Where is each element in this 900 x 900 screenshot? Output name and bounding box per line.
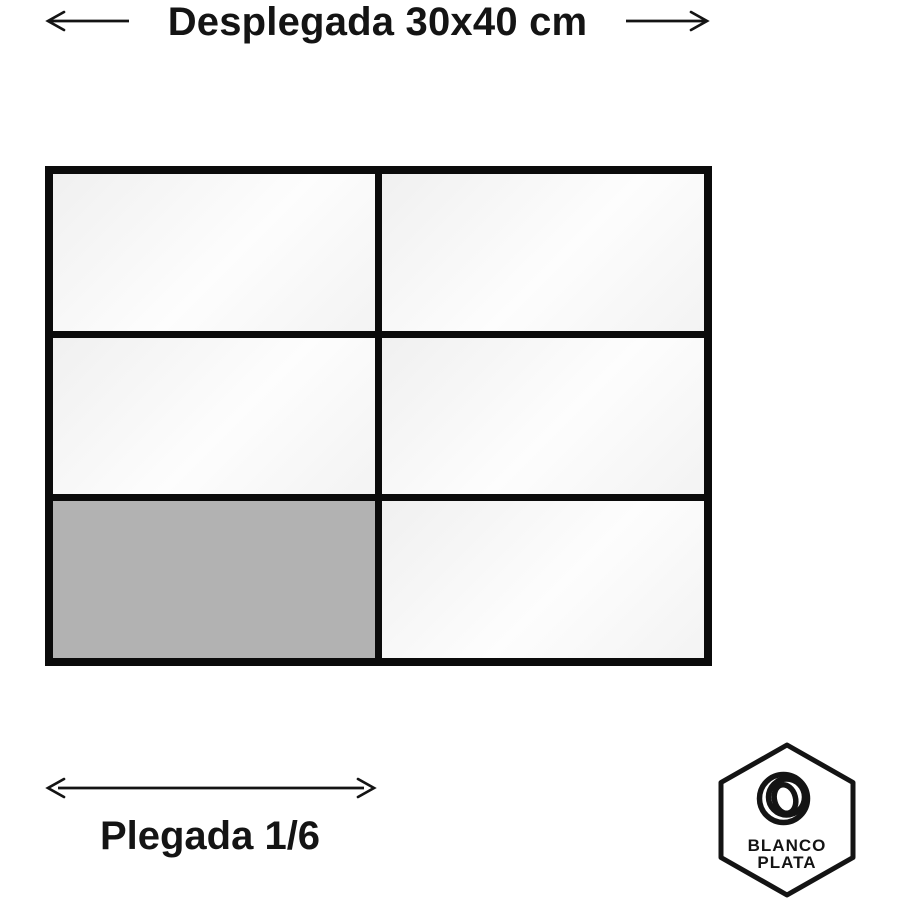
swirl-icon xyxy=(760,775,808,823)
panel-cell xyxy=(382,501,704,658)
fold-grid xyxy=(45,166,712,666)
unfolded-size-label: Desplegada 30x40 cm xyxy=(140,0,615,45)
arrow-right-icon xyxy=(623,8,711,34)
folded-size-label: Plegada 1/6 xyxy=(40,812,380,860)
double-arrow-icon xyxy=(44,775,378,801)
panel-cell xyxy=(53,174,375,331)
panel-cell xyxy=(382,338,704,495)
arrow-left-icon xyxy=(44,8,132,34)
brand-logo: BLANCO PLATA xyxy=(715,739,859,900)
folded-panel-cell xyxy=(53,501,375,658)
logo-text-line2: PLATA xyxy=(757,853,816,872)
panel-cell xyxy=(382,174,704,331)
panel-cell xyxy=(53,338,375,495)
